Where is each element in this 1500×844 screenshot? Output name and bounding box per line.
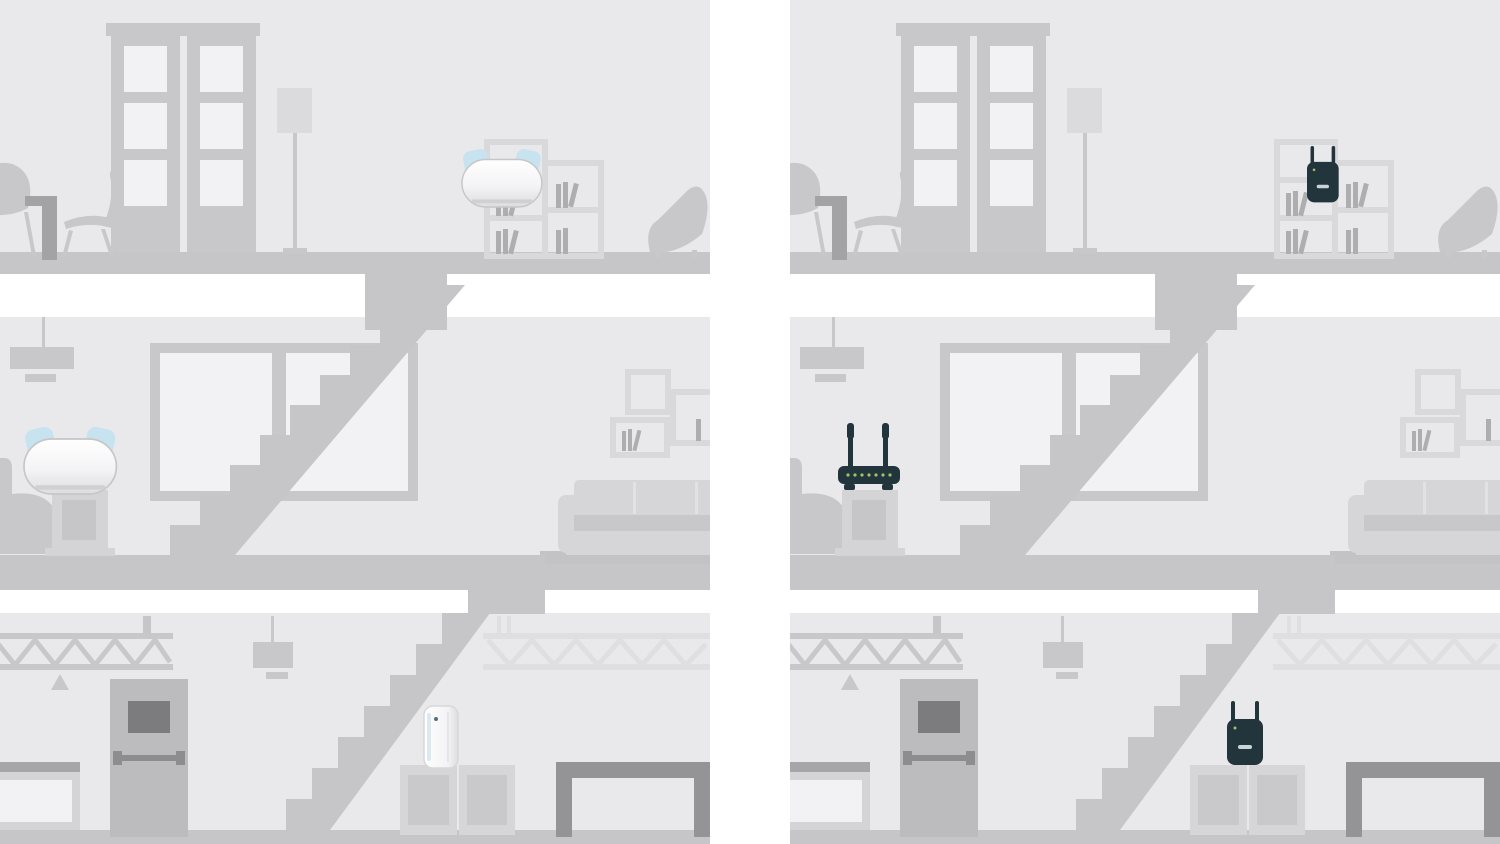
panel-mesh-wifi-system (0, 0, 710, 844)
panel-router-extenders (790, 0, 1500, 844)
comparison-illustration (0, 0, 1500, 844)
mesh-node-basement (424, 706, 458, 768)
